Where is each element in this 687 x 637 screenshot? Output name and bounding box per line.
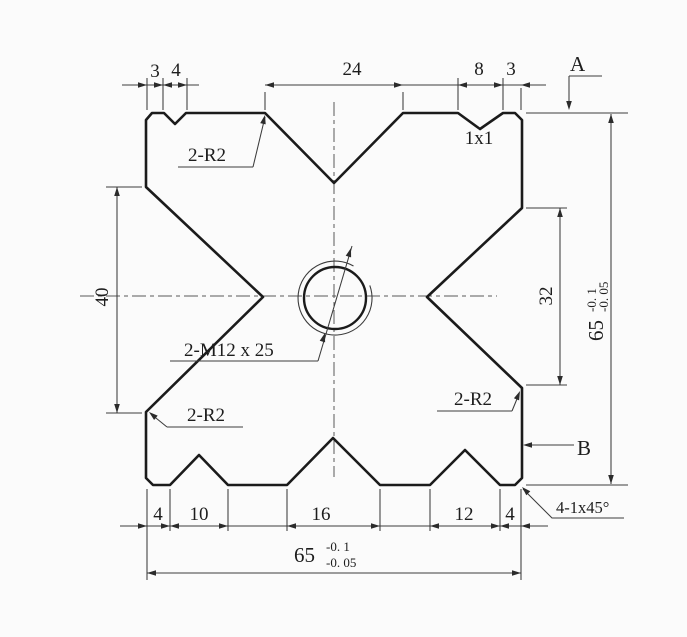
datum-b-label: B	[577, 436, 591, 460]
dim-height-lower-tol: -0. 05	[596, 282, 611, 312]
thread-hole	[298, 261, 372, 335]
dim-right-32: 32	[536, 287, 557, 306]
dim-bottom-16: 16	[312, 504, 331, 525]
part-outline	[146, 113, 522, 485]
dim-height-65: 65	[584, 320, 608, 341]
dim-width-lower-tol: -0. 05	[326, 555, 356, 570]
dim-bottom-4-left: 4	[153, 504, 163, 525]
engineering-drawing: 3 4 24 8 3 40 32 65 -0. 1 -0. 05 4 10 16…	[0, 0, 687, 637]
dim-bottom-12: 12	[455, 504, 474, 525]
notch-detail-label: 1x1	[465, 128, 494, 149]
fillet-bottom-right-label: 2-R2	[454, 389, 492, 410]
thread-callout-label: 2-M12 x 25	[184, 340, 274, 361]
dim-left-40: 40	[92, 288, 113, 307]
datum-a-leader	[569, 76, 602, 106]
datum-a-label: A	[570, 52, 586, 76]
extension-lines	[106, 78, 628, 580]
dim-width-upper-tol: -0. 1	[326, 539, 350, 554]
fillet-top-left-label: 2-R2	[188, 145, 226, 166]
corner-chamfer-label: 4-1x45°	[556, 498, 609, 517]
dim-top-4: 4	[171, 60, 181, 81]
hole-thread-arc	[298, 261, 372, 335]
callout-texts: A B 2-R2 2-R2 2-R2 1x1 2-M12 x 25 4-1x45…	[184, 52, 609, 517]
dim-top-3-right: 3	[506, 59, 516, 80]
fillet-bottom-left-label: 2-R2	[187, 405, 225, 426]
dim-width-65: 65	[294, 543, 315, 567]
drawing-svg: 3 4 24 8 3 40 32 65 -0. 1 -0. 05 4 10 16…	[0, 0, 687, 637]
dim-bottom-10: 10	[190, 504, 209, 525]
dim-top-8: 8	[474, 59, 484, 80]
hole-minor-circle	[304, 267, 366, 329]
dim-top-3-left: 3	[150, 61, 160, 82]
dim-bottom-4-right: 4	[505, 504, 515, 525]
dim-top-24: 24	[343, 59, 363, 80]
